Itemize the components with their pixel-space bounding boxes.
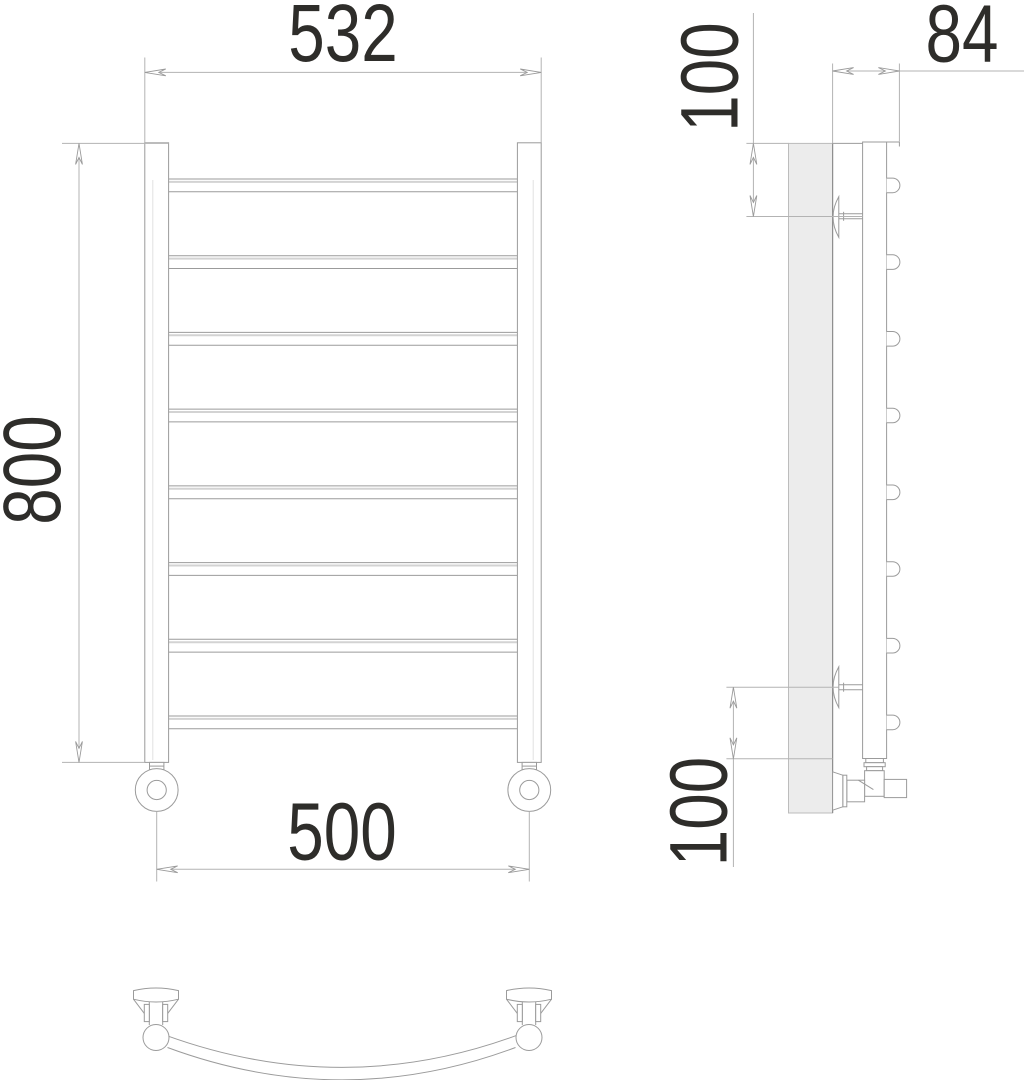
plan-view xyxy=(134,988,552,1080)
collar-tab xyxy=(536,1004,541,1021)
crossbar-8 xyxy=(169,716,518,729)
valve-body xyxy=(865,771,885,797)
wall-cap xyxy=(134,988,179,1002)
curved-bar-front-edge xyxy=(166,1035,518,1067)
dim-overall-width: 532 xyxy=(145,0,541,143)
escutcheon-inner xyxy=(520,780,539,799)
escutcheon-inner xyxy=(147,780,166,799)
plan-right-mount xyxy=(507,988,552,1051)
right-post xyxy=(517,143,541,763)
bump-4 xyxy=(887,408,900,423)
valve-outlet xyxy=(884,779,906,797)
dim-label-mount-spacing: 500 xyxy=(287,786,396,878)
wall-cap xyxy=(507,988,552,1002)
right-foot xyxy=(508,762,551,811)
bump-6 xyxy=(887,562,900,577)
crossbar-7 xyxy=(169,639,518,652)
dim-label-height: 800 xyxy=(0,415,78,524)
side-post xyxy=(863,142,887,759)
crossbars xyxy=(169,179,518,729)
bump-2 xyxy=(887,255,900,270)
bump-1 xyxy=(887,178,900,193)
wall-strip xyxy=(789,143,833,813)
dim-depth: 84 xyxy=(833,0,1024,143)
escutcheon-plan xyxy=(143,1025,169,1051)
bump-5 xyxy=(887,485,900,500)
drawing-canvas: 532 800 500 84 xyxy=(0,0,1024,1080)
towel-rail-technical-drawing: 532 800 500 84 xyxy=(0,0,1024,1080)
dim-mount-spacing: 500 xyxy=(157,786,530,882)
union-nut-flange xyxy=(864,763,885,767)
crossbar-5 xyxy=(169,486,518,499)
dim-label-bottom-offset: 100 xyxy=(653,757,745,866)
plan-left-mount xyxy=(134,988,179,1051)
collar-tab xyxy=(163,1004,168,1021)
dim-label-top-offset: 100 xyxy=(664,22,756,131)
side-view xyxy=(789,142,907,813)
valve-inlet-pipe xyxy=(847,780,865,802)
bump-7 xyxy=(887,638,900,653)
dim-label-depth: 84 xyxy=(926,0,999,79)
pipe-flange-ring xyxy=(843,775,847,807)
crossbar-3 xyxy=(169,332,518,345)
union-nut-bottom xyxy=(867,767,883,771)
collar-tab xyxy=(517,1004,522,1021)
crossbar-6 xyxy=(169,563,518,576)
valve-assembly xyxy=(833,759,907,811)
crossbar-4 xyxy=(169,409,518,422)
front-view xyxy=(135,143,550,812)
crossbar-1 xyxy=(169,179,518,192)
left-post xyxy=(145,143,169,763)
dim-height: 800 xyxy=(0,143,169,762)
collar-tab xyxy=(144,1004,149,1021)
wall-cone xyxy=(833,772,843,810)
union-nut-top xyxy=(866,759,884,763)
dim-label-overall-width: 532 xyxy=(288,0,397,79)
crossbar-2 xyxy=(169,256,518,269)
crossbar-side-bumps xyxy=(887,178,900,730)
escutcheon-plan xyxy=(516,1025,542,1051)
bump-3 xyxy=(887,332,900,347)
left-foot xyxy=(135,762,178,811)
bump-8 xyxy=(887,715,900,730)
